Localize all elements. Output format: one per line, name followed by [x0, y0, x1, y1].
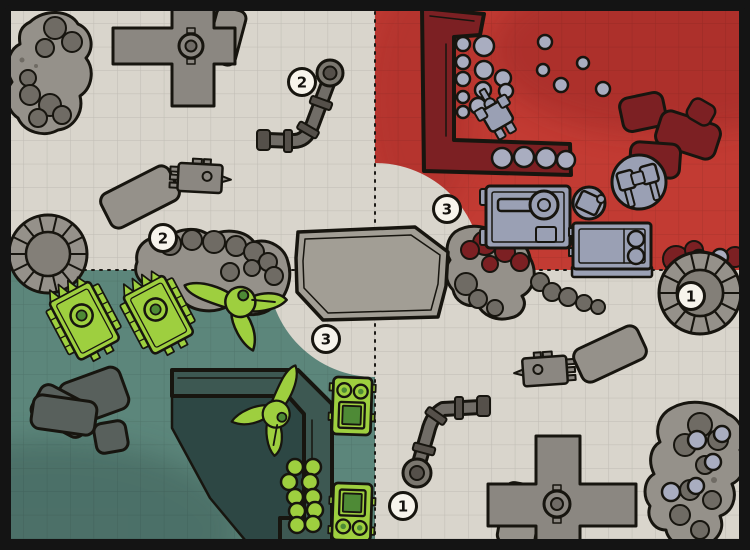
objective-marker-3-east[interactable]: 3 — [434, 196, 461, 223]
svg-text:1: 1 — [398, 498, 408, 516]
rock-outcrop-top-left[interactable] — [7, 12, 91, 133]
objective-marker-1-east[interactable]: 1 — [678, 283, 705, 310]
battle-map: 2 2 3 3 1 1 — [0, 0, 750, 550]
green-truck-1[interactable] — [328, 377, 376, 436]
objective-marker-2-north[interactable]: 2 — [289, 69, 316, 96]
objective-marker-2-west[interactable]: 2 — [150, 225, 177, 252]
turret — [530, 191, 558, 219]
apc-token-red[interactable] — [569, 223, 652, 277]
central-platform[interactable] — [296, 227, 448, 320]
tank-token-red[interactable] — [480, 186, 570, 248]
battle-map-stage: 2 2 3 3 1 1 — [0, 0, 750, 550]
objective-marker-3-south[interactable]: 3 — [313, 326, 340, 353]
svg-text:2: 2 — [297, 74, 307, 92]
crater-west[interactable] — [9, 215, 87, 293]
green-truck-2[interactable] — [328, 483, 376, 542]
objective-marker-1-south[interactable]: 1 — [390, 493, 417, 520]
svg-text:1: 1 — [686, 288, 696, 306]
svg-text:3: 3 — [321, 331, 331, 349]
svg-text:3: 3 — [442, 201, 452, 219]
walker-token-red[interactable] — [612, 155, 666, 209]
svg-text:2: 2 — [158, 230, 168, 248]
drone-token-red[interactable] — [573, 187, 605, 219]
